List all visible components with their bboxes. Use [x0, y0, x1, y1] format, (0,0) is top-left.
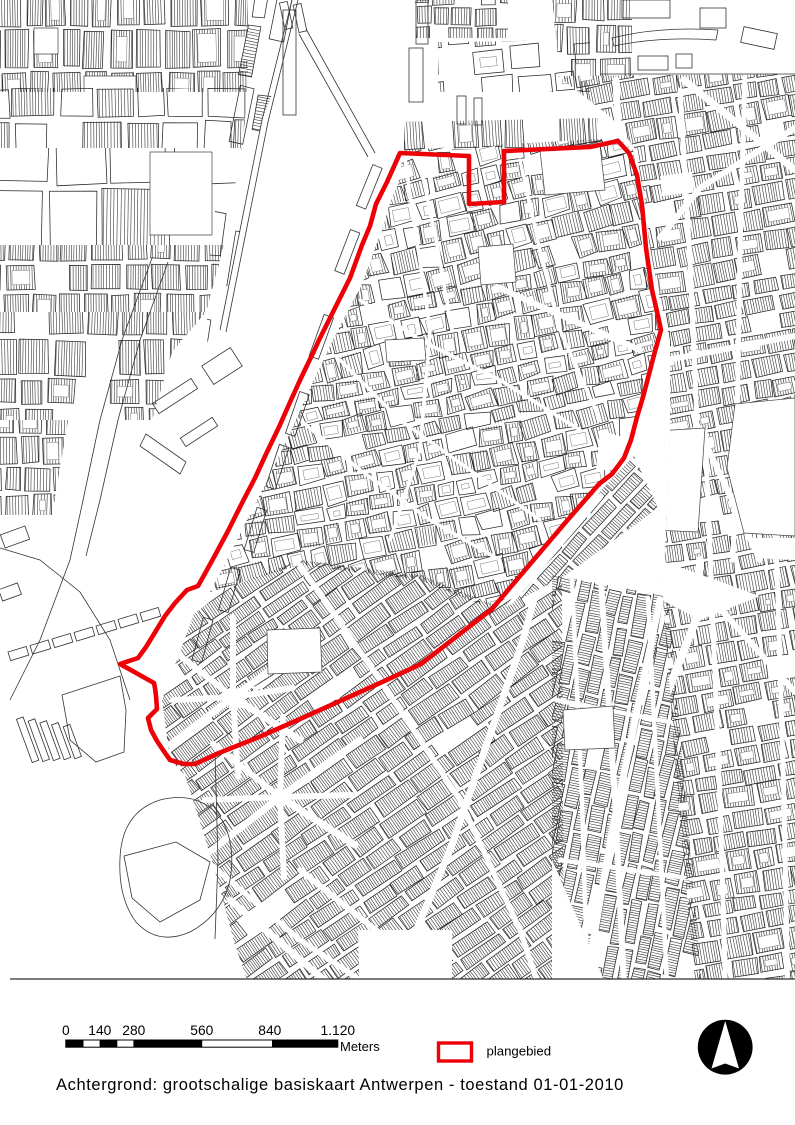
svg-text:140: 140: [88, 1023, 111, 1038]
svg-text:280: 280: [122, 1023, 145, 1038]
svg-text:840: 840: [258, 1023, 281, 1038]
svg-text:Achtergrond: grootschalige bas: Achtergrond: grootschalige basiskaart An…: [56, 1076, 624, 1094]
svg-text:560: 560: [190, 1023, 213, 1038]
svg-text:plangebied: plangebied: [487, 1044, 552, 1059]
svg-text:1.120: 1.120: [321, 1023, 356, 1038]
svg-text:0: 0: [62, 1023, 70, 1038]
svg-text:Meters: Meters: [340, 1039, 380, 1054]
